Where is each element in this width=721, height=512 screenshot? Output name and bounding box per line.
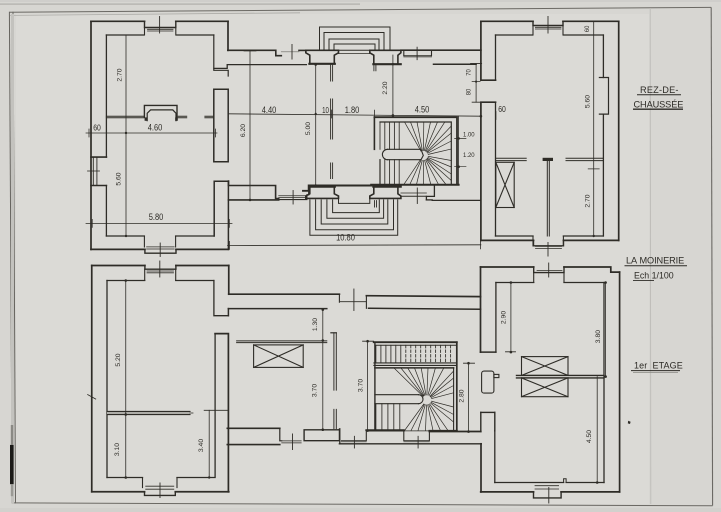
svg-text:1.30: 1.30: [312, 318, 319, 332]
svg-text:1.80: 1.80: [345, 104, 360, 115]
svg-text:80: 80: [466, 88, 473, 95]
svg-text:1er ETAGE: 1er ETAGE: [634, 360, 683, 370]
svg-text:2.20: 2.20: [382, 81, 389, 95]
svg-text:LA MOINERIE: LA MOINERIE: [626, 256, 684, 266]
svg-text:1.20: 1.20: [463, 152, 475, 159]
svg-text:3.40: 3.40: [198, 439, 205, 453]
svg-text:70: 70: [466, 69, 473, 76]
svg-text:2.80: 2.80: [458, 389, 465, 403]
svg-text:60: 60: [498, 105, 506, 114]
svg-text:3.70: 3.70: [311, 384, 318, 398]
svg-text:5.20: 5.20: [115, 353, 122, 367]
svg-text:4.60: 4.60: [148, 121, 163, 132]
svg-text:5.60: 5.60: [116, 172, 123, 186]
svg-text:60: 60: [93, 124, 101, 133]
svg-text:2.70: 2.70: [117, 68, 124, 82]
svg-text:CHAUSSÉE: CHAUSSÉE: [634, 99, 684, 109]
svg-text:Ech 1/100: Ech 1/100: [634, 271, 674, 281]
svg-text:3.10: 3.10: [114, 443, 121, 457]
svg-text:4.50: 4.50: [586, 430, 593, 444]
svg-text:4.40: 4.40: [262, 104, 277, 115]
svg-text:2.90: 2.90: [501, 311, 508, 325]
svg-text:1.00: 1.00: [463, 131, 475, 138]
svg-text:10.80: 10.80: [336, 232, 355, 243]
svg-text:4.50: 4.50: [415, 103, 430, 114]
svg-text:5.00: 5.00: [305, 122, 312, 136]
svg-text:2.70: 2.70: [585, 194, 592, 208]
svg-text:REZ-DE-: REZ-DE-: [640, 85, 679, 95]
svg-text:5.60: 5.60: [585, 95, 592, 109]
svg-text:3.70: 3.70: [358, 379, 365, 393]
svg-text:3.80: 3.80: [595, 330, 602, 344]
svg-text:10: 10: [322, 106, 329, 115]
svg-text:60: 60: [584, 25, 591, 32]
svg-text:5.80: 5.80: [149, 211, 164, 222]
svg-text:6.20: 6.20: [240, 124, 247, 138]
